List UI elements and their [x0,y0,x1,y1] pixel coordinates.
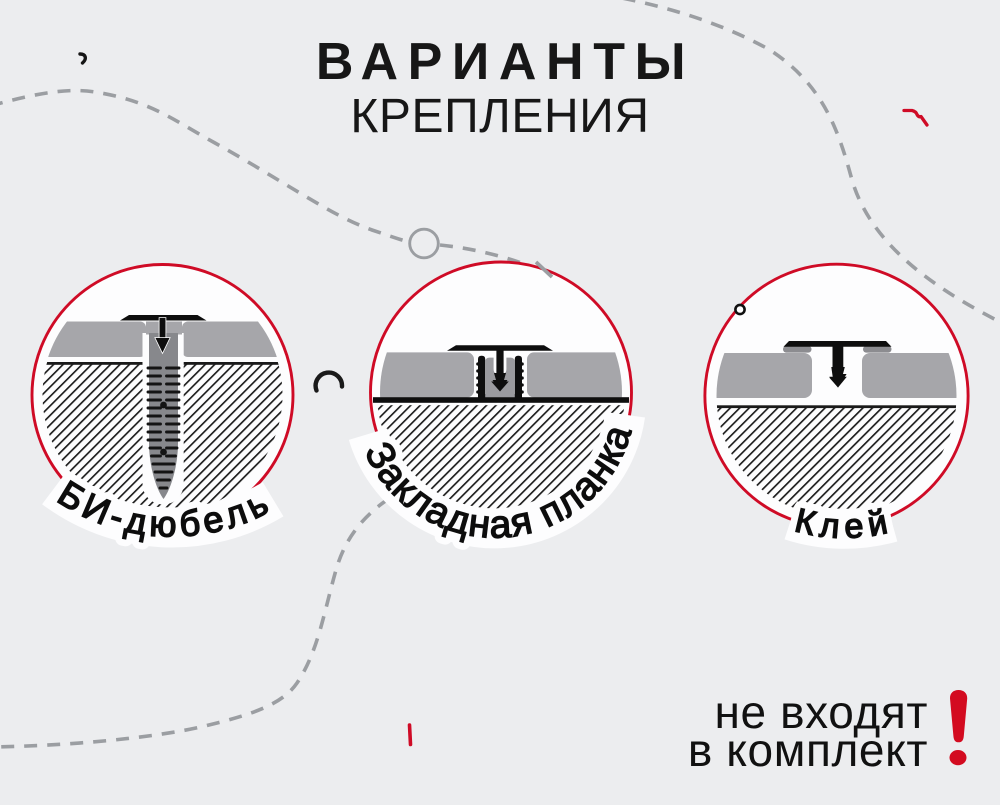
svg-text:ю: ю [149,503,178,545]
svg-text:б: б [178,502,202,545]
svg-text:в комплект: в комплект [688,724,928,776]
svg-text:КРЕПЛЕНИЯ: КРЕПЛЕНИЯ [350,90,649,143]
svg-text:е: е [843,507,864,546]
svg-text:ВАРИАНТЫ: ВАРИАНТЫ [316,33,695,91]
svg-text:л: л [818,506,841,546]
